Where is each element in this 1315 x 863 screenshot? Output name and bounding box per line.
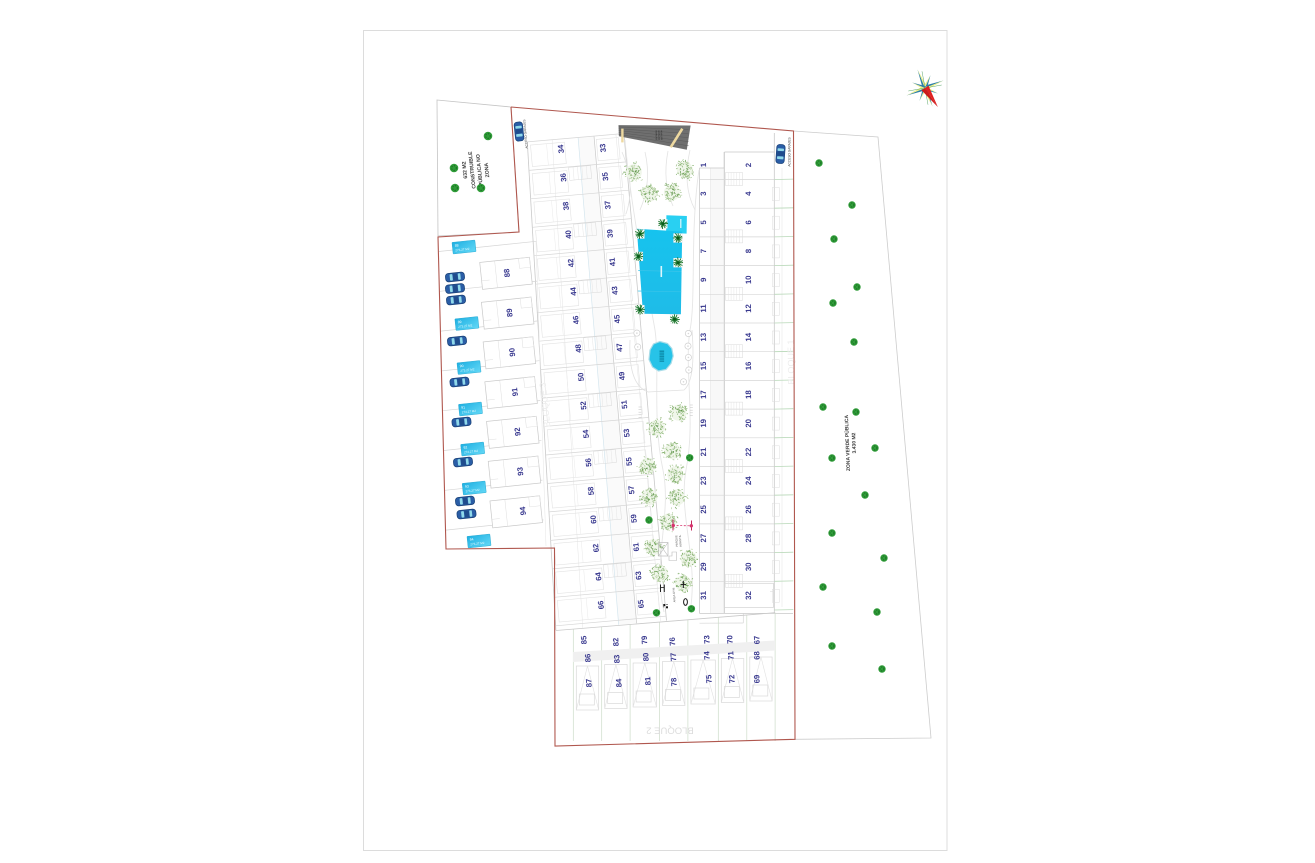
svg-text:51: 51 [619,399,629,409]
svg-text:21: 21 [699,447,708,457]
svg-text:35: 35 [600,171,610,181]
svg-text:76: 76 [668,636,678,646]
svg-text:17: 17 [699,390,708,399]
svg-text:63: 63 [634,570,644,580]
svg-text:75: 75 [704,674,714,684]
svg-text:68: 68 [752,650,762,660]
svg-text:82: 82 [611,637,621,647]
svg-text:77: 77 [669,652,679,661]
svg-text:36: 36 [559,172,569,182]
svg-text:89: 89 [505,307,515,317]
svg-text:53: 53 [622,428,632,438]
svg-text:41: 41 [608,257,618,267]
svg-text:86: 86 [583,653,593,663]
svg-text:33: 33 [598,143,608,153]
svg-text:32: 32 [744,590,753,600]
svg-text:14: 14 [744,332,753,342]
svg-text:56: 56 [584,457,594,467]
svg-text:64: 64 [594,571,604,581]
svg-text:18: 18 [744,389,753,399]
svg-text:59: 59 [629,513,639,523]
svg-text:46: 46 [571,315,581,325]
svg-text:81: 81 [643,676,653,686]
svg-text:74: 74 [702,650,712,660]
svg-text:90: 90 [507,347,517,357]
svg-text:25: 25 [699,504,708,514]
svg-text:45: 45 [612,314,622,324]
svg-text:37: 37 [603,200,613,210]
svg-text:26: 26 [744,504,753,514]
svg-text:10: 10 [744,275,753,285]
svg-text:88: 88 [502,268,512,278]
svg-text:78: 78 [669,677,679,687]
svg-text:94: 94 [518,506,528,516]
svg-text:22: 22 [744,447,753,457]
svg-text:ACCESO GARAJES: ACCESO GARAJES [788,137,792,166]
svg-text:54: 54 [581,429,591,439]
svg-text:39: 39 [605,228,615,238]
svg-text:15: 15 [699,361,708,371]
svg-text:61: 61 [631,542,641,552]
svg-text:67: 67 [752,635,762,644]
svg-text:24: 24 [744,476,753,486]
svg-text:BLOQUE 2: BLOQUE 2 [646,725,694,736]
svg-text:28: 28 [744,533,753,543]
svg-text:50: 50 [576,372,586,382]
svg-text:34: 34 [556,144,566,154]
svg-text:84: 84 [614,678,624,688]
svg-text:72: 72 [727,674,737,684]
svg-text:43: 43 [610,285,620,295]
svg-text:11: 11 [699,304,708,313]
svg-text:27: 27 [699,534,708,543]
svg-text:93: 93 [515,466,525,476]
svg-text:66: 66 [596,600,606,610]
svg-text:30: 30 [744,562,753,572]
svg-text:ENTRADA: ENTRADA [660,130,663,140]
svg-text:69: 69 [752,674,762,684]
svg-text:49: 49 [617,371,627,381]
svg-text:57: 57 [627,485,637,495]
svg-text:48: 48 [574,343,584,353]
svg-text:73: 73 [702,634,712,644]
svg-text:44: 44 [569,286,579,296]
svg-text:20: 20 [744,418,753,428]
svg-text:91: 91 [510,387,520,397]
svg-text:80: 80 [641,652,651,662]
svg-text:29: 29 [699,562,708,572]
svg-text:23: 23 [699,476,708,486]
svg-text:92: 92 [513,426,523,436]
svg-text:65: 65 [636,599,646,609]
svg-text:16: 16 [744,361,753,371]
svg-text:7: 7 [699,249,708,254]
svg-text:BLOQUE 1: BLOQUE 1 [786,339,797,384]
svg-text:83: 83 [612,654,622,664]
svg-text:52: 52 [579,400,589,410]
svg-text:71: 71 [726,650,736,660]
svg-text:42: 42 [566,258,576,268]
svg-text:40: 40 [564,229,574,239]
svg-text:31: 31 [699,590,708,600]
svg-text:12: 12 [744,303,753,313]
svg-text:55: 55 [624,456,634,466]
svg-text:13: 13 [699,332,708,342]
svg-text:38: 38 [561,201,571,211]
svg-text:87: 87 [584,678,594,687]
svg-text:47: 47 [615,343,625,353]
svg-text:19: 19 [699,418,708,428]
svg-text:85: 85 [579,635,589,645]
svg-text:60: 60 [589,514,599,524]
svg-text:3.430 M2: 3.430 M2 [851,432,858,453]
svg-text:58: 58 [586,486,596,496]
svg-text:79: 79 [640,635,650,645]
svg-text:62: 62 [591,543,601,553]
svg-text:70: 70 [725,634,735,644]
